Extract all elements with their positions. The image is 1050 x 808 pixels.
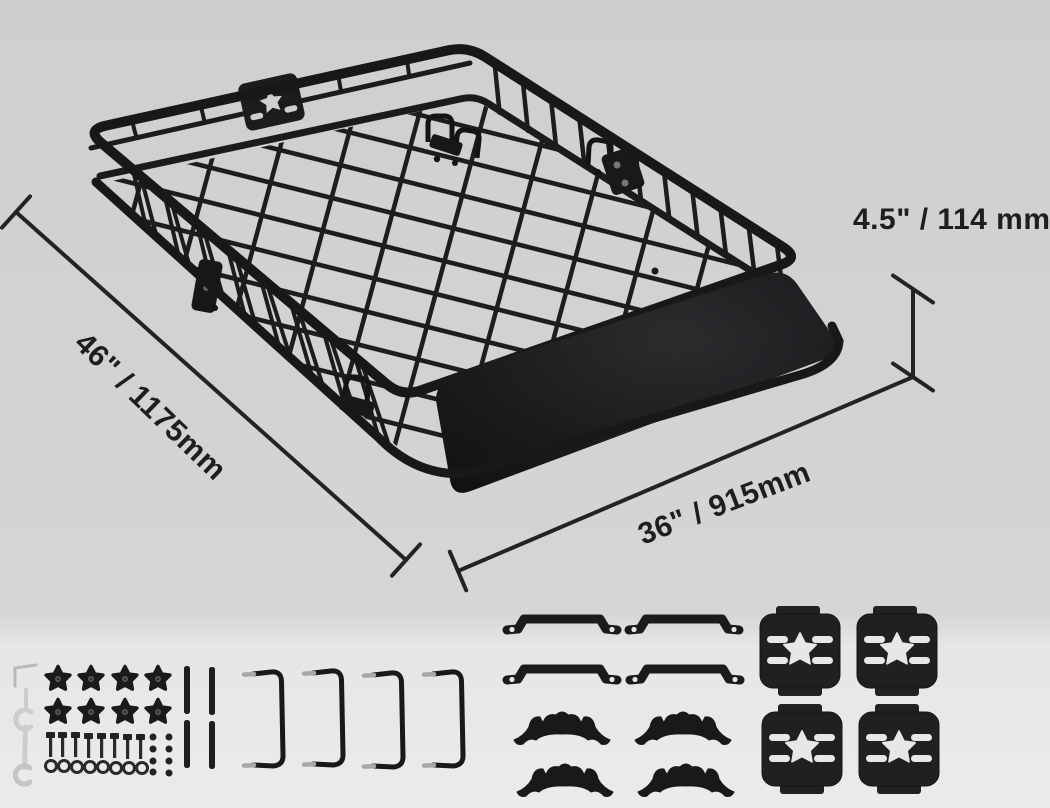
- rod: [209, 667, 215, 715]
- saddle-pad: [635, 712, 731, 745]
- star-mounting-plate: [762, 704, 842, 794]
- u-bolt-bracket: [364, 673, 403, 767]
- strap-clamp: [507, 669, 617, 682]
- star-knobs: [46, 667, 170, 723]
- strap-clamp: [629, 619, 739, 632]
- washer: [111, 763, 122, 774]
- nut: [166, 746, 173, 753]
- star-knob: [113, 667, 137, 690]
- star-knob: [146, 700, 170, 723]
- strap-clamp: [630, 669, 740, 682]
- height-dimension-line: [893, 276, 933, 391]
- star-mounting-plates: [760, 606, 939, 794]
- bolt: [46, 732, 55, 757]
- nut: [150, 769, 157, 776]
- bolt: [110, 733, 119, 758]
- nut: [166, 770, 173, 777]
- u-bolt-bracket: [304, 671, 343, 765]
- bolts: [46, 732, 145, 759]
- washer: [137, 763, 148, 774]
- washers: [46, 761, 148, 774]
- washer: [72, 762, 83, 773]
- bolt: [136, 734, 145, 759]
- bolt: [58, 732, 67, 757]
- star-knob: [79, 667, 103, 690]
- hardware-kit: [15, 606, 939, 797]
- u-bolt-bracket: [244, 672, 283, 766]
- strap-clamp: [507, 619, 617, 632]
- extension-rods: [184, 666, 215, 769]
- wrench: [15, 665, 36, 784]
- star-mounting-plate: [857, 606, 937, 696]
- hex-key: [15, 665, 36, 686]
- nut: [150, 746, 157, 753]
- saddle-pad: [638, 764, 734, 797]
- bolt: [97, 733, 106, 758]
- fairing-screw-1: [652, 268, 659, 275]
- height-dimension-label: 4.5" / 114 mm: [853, 203, 1050, 237]
- washer: [59, 761, 70, 772]
- saddle-pad: [517, 764, 613, 797]
- bolt: [71, 732, 80, 757]
- washer: [98, 762, 109, 773]
- washer: [124, 763, 135, 774]
- washer: [85, 762, 96, 773]
- saddle-pad: [514, 712, 610, 745]
- tick-mark: [450, 552, 466, 591]
- star-knob: [46, 700, 70, 723]
- washer: [46, 761, 57, 772]
- rod: [184, 666, 190, 714]
- product-diagram: 46" / 1175mm 36" / 915mm 4.5" / 114 mm: [0, 0, 1050, 808]
- bolt: [84, 733, 93, 758]
- u-bolt-bracket: [424, 672, 463, 766]
- nut: [150, 758, 157, 765]
- nut: [166, 758, 173, 765]
- nut: [150, 734, 157, 741]
- star-knob: [79, 700, 103, 723]
- star-knob: [146, 667, 170, 690]
- bolt: [123, 734, 132, 759]
- saddle-pads: [514, 712, 734, 797]
- nuts: [150, 734, 173, 777]
- strap-clamps: [507, 619, 740, 682]
- rod: [184, 720, 190, 768]
- nut: [166, 734, 173, 741]
- star-mounting-plate: [859, 704, 939, 794]
- rod: [209, 721, 215, 769]
- star-knob: [46, 667, 70, 690]
- u-bolt-brackets: [244, 671, 463, 767]
- star-mounting-plate: [760, 606, 840, 696]
- star-knob: [113, 700, 137, 723]
